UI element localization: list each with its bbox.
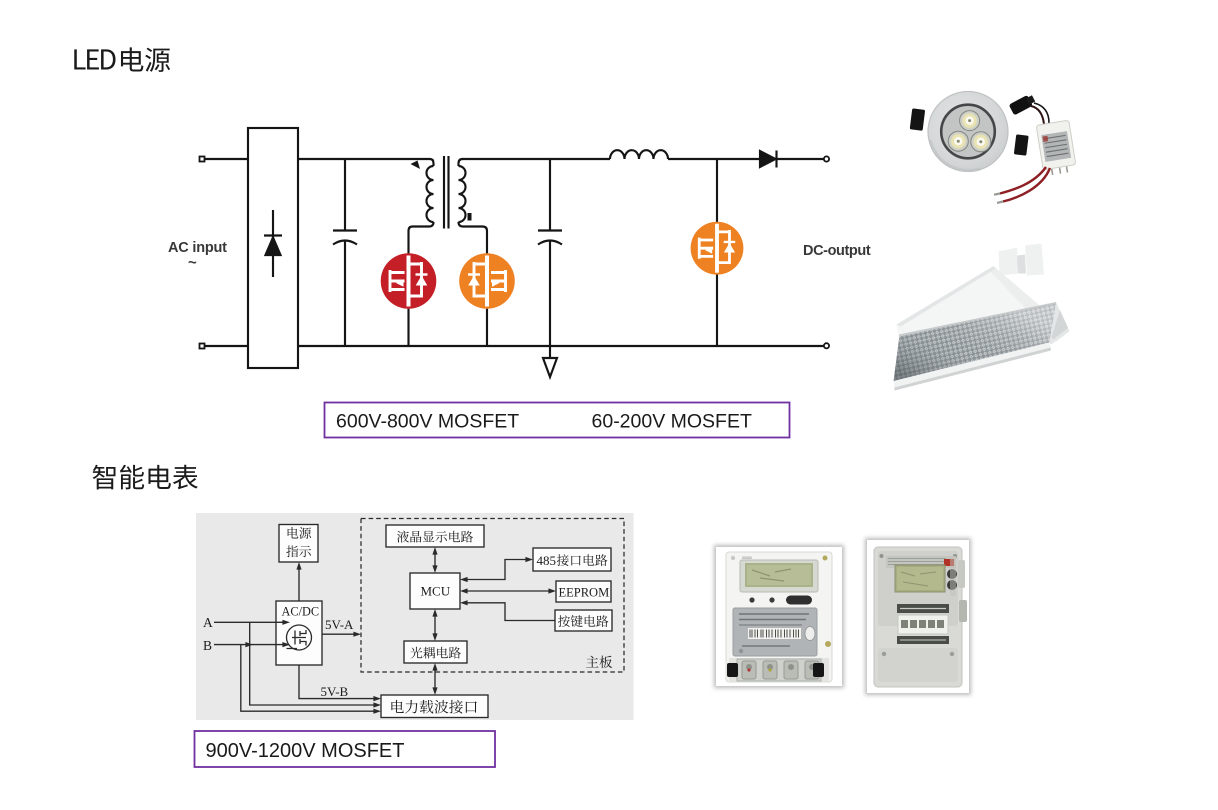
svg-text:5V-B: 5V-B: [321, 684, 349, 699]
svg-text:AC input: AC input: [168, 240, 227, 256]
svg-text:485: 485: [537, 553, 557, 568]
svg-text:600V-800V MOSFET: 600V-800V MOSFET: [336, 411, 519, 433]
svg-text:MCU: MCU: [421, 584, 451, 599]
svg-text:DC-output: DC-output: [803, 243, 871, 259]
svg-text:B: B: [203, 638, 212, 653]
svg-text:A: A: [203, 615, 213, 630]
svg-text:EEPROM: EEPROM: [559, 586, 610, 600]
svg-text:5V-A: 5V-A: [325, 617, 354, 632]
svg-text:00000: 00000: [742, 556, 752, 560]
svg-text:~: ~: [188, 255, 197, 272]
svg-text:AC/DC: AC/DC: [282, 605, 320, 619]
svg-text:60-200V MOSFET: 60-200V MOSFET: [592, 411, 752, 433]
svg-text:900V-1200V MOSFET: 900V-1200V MOSFET: [206, 740, 405, 762]
